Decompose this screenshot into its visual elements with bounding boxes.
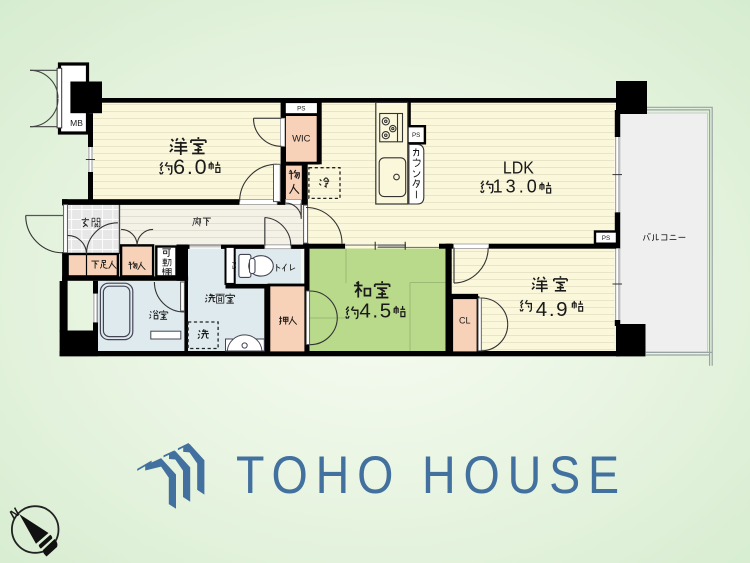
svg-text:13.0: 13.0 [493, 177, 540, 197]
svg-text:TOHO HOUSE: TOHO HOUSE [236, 445, 627, 504]
svg-text:PS: PS [412, 132, 420, 139]
svg-text:PS: PS [602, 235, 610, 242]
svg-text:CL: CL [459, 316, 471, 326]
svg-text:PS: PS [230, 261, 236, 269]
svg-text:6.0: 6.0 [173, 155, 208, 179]
svg-text:PS: PS [297, 106, 305, 113]
svg-text:4.9: 4.9 [536, 298, 569, 321]
svg-text:4.5: 4.5 [359, 300, 392, 323]
svg-text:LDK: LDK [503, 158, 534, 178]
svg-text:MB: MB [70, 118, 83, 128]
svg-text:WIC: WIC [292, 134, 311, 145]
